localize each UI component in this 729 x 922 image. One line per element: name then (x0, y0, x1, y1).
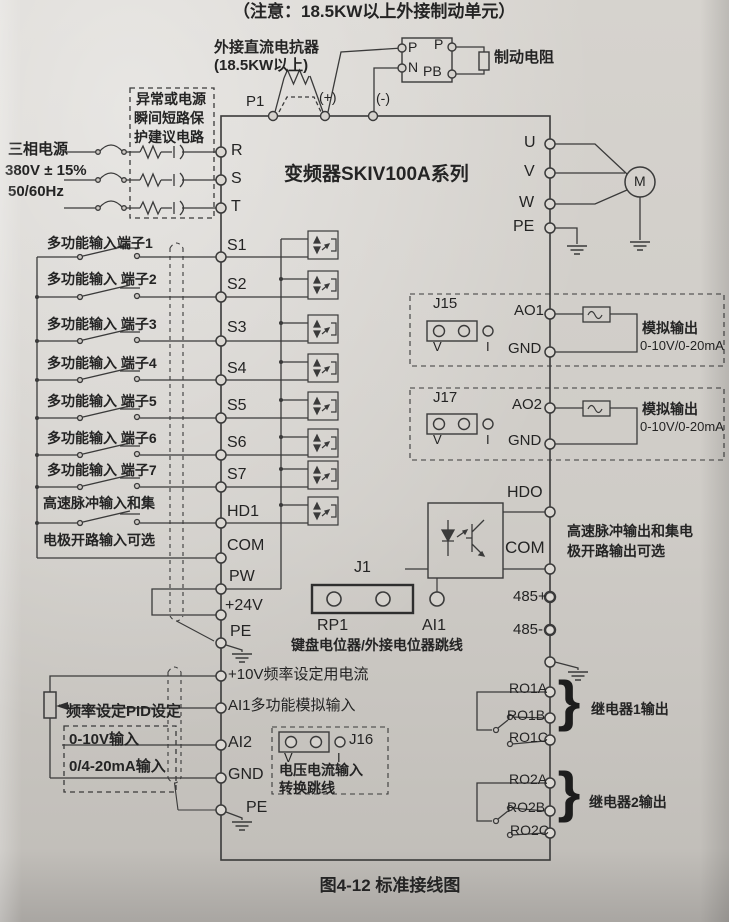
terminal-ao2: AO2 (512, 397, 542, 413)
pulse-output-desc2: 极开路输出可选 (567, 544, 665, 559)
terminal-ao2-gnd: GND (508, 433, 541, 449)
protection-box (130, 88, 214, 218)
ao1-desc2: 0-10V/0-20mA (640, 339, 724, 353)
brake-resistor-symbol (479, 52, 489, 70)
wiring-diagram-page: （注意：18.5KW以上外接制动单元） 外接直流电抗器 (18.5KW以上) P… (0, 0, 729, 922)
terminal-ro1b: RO1B (507, 708, 545, 723)
j17-label: J17 (433, 390, 457, 406)
shield-cable-digital (170, 243, 214, 641)
terminal-ro2c: RO2C (510, 823, 549, 838)
brake-resistor-label: 制动电阻 (494, 50, 554, 66)
potentiometer-symbol (44, 692, 56, 718)
brake-terminal-n: N (408, 60, 418, 75)
di-label-hd1: 高速脉冲输入和集 (43, 496, 155, 511)
terminal-ao1-gnd: GND (508, 341, 541, 357)
di-label-1: 多功能输入端子1 (47, 236, 153, 251)
di-label-7: 多功能输入 端子7 (47, 463, 157, 478)
terminal-v: V (524, 164, 535, 181)
j17-v: V (433, 433, 442, 447)
j16-label: J16 (349, 732, 373, 748)
di-label-6: 多功能输入 端子6 (47, 431, 157, 446)
terminal-ro2a: RO2A (509, 772, 547, 787)
terminal-com-right: COM (505, 539, 545, 557)
motor-circuit (555, 144, 655, 244)
terminal-plus: (+) (319, 90, 337, 105)
protection-line2: 瞬间短路保 (134, 111, 204, 126)
terminal-s5: S5 (227, 398, 247, 415)
j1-jumper (312, 578, 444, 613)
wiring-diagram-canvas (0, 0, 729, 922)
terminal-com: COM (227, 538, 264, 555)
dc-reactor-spec: (18.5KW以上) (214, 58, 308, 74)
terminal-u: U (524, 135, 536, 152)
terminal-s6: S6 (227, 435, 247, 452)
terminal-r: R (231, 143, 243, 160)
figure-caption: 图4-12 标准接线图 (240, 877, 540, 895)
terminal-s3: S3 (227, 320, 247, 337)
terminal-pe-bottom: PE (246, 800, 267, 817)
j16-note1: 电压电流输入 (279, 763, 363, 778)
terminal-hd1: HD1 (227, 504, 259, 521)
terminal-pe-out: PE (513, 219, 534, 236)
j15-i: I (486, 340, 490, 354)
j15-label: J15 (433, 296, 457, 312)
di-label-5: 多功能输入 端子5 (47, 394, 157, 409)
terminal-ai2: AI2 (228, 735, 252, 752)
terminal-s7: S7 (227, 467, 247, 484)
brake-terminal-pb: PB (423, 64, 442, 79)
ao1-desc1: 模拟输出 (642, 321, 698, 336)
inverter-title: 变频器SKIV100A系列 (284, 165, 469, 185)
relay2-brace: } (557, 763, 580, 822)
terminal-ro1a: RO1A (509, 681, 547, 696)
ao2-desc1: 模拟输出 (642, 402, 698, 417)
power-line1: 三相电源 (8, 142, 68, 158)
brake-terminal-p-left: P (408, 40, 417, 55)
j1-label: J1 (354, 560, 371, 577)
power-input-circuit (64, 88, 216, 218)
j15-v: V (433, 340, 442, 354)
di-label-com: 电极开路输入可选 (43, 533, 155, 548)
relay2-desc: 继电器2输出 (589, 795, 667, 810)
terminal-ai1: AI1多功能模拟输入 (228, 698, 356, 714)
terminal-s: S (231, 171, 242, 188)
terminal-hdo: HDO (507, 485, 543, 502)
shield-cable-analog (168, 667, 216, 810)
terminal-t: T (231, 199, 241, 216)
meter-symbol (583, 307, 610, 322)
terminal-s4: S4 (227, 361, 247, 378)
relay1-brace: } (557, 672, 580, 731)
power-line3: 50/60Hz (8, 184, 64, 200)
terminal-gnd: GND (228, 767, 264, 784)
brake-terminal-p-right: P (434, 37, 443, 52)
terminal-s2: S2 (227, 277, 247, 294)
motor-label: M (634, 174, 646, 189)
inverter-box (221, 116, 550, 860)
relay1-desc: 继电器1输出 (591, 702, 669, 717)
keypad-pot-note: 键盘电位器/外接电位器跳线 (291, 638, 463, 653)
range-0-10v: 0-10V输入 (69, 732, 139, 748)
terminal-ao1: AO1 (514, 303, 544, 319)
terminal-minus: (-) (376, 91, 390, 106)
terminal-p1: P1 (246, 94, 264, 110)
j16-jumper (279, 732, 345, 752)
meter-symbol (583, 401, 610, 416)
terminal-w: W (519, 195, 534, 212)
protection-line1: 异常或电源 (136, 92, 206, 107)
di-label-2: 多功能输入 端子2 (47, 272, 157, 287)
ao2-desc2: 0-10V/0-20mA (640, 420, 724, 434)
dc-reactor-label: 外接直流电抗器 (214, 40, 319, 56)
terminal-pw: PW (229, 569, 255, 586)
power-line2: 380V ± 15% (5, 163, 87, 179)
di-label-3: 多功能输入 端子3 (47, 317, 157, 332)
pulse-output-desc1: 高速脉冲输出和集电 (567, 524, 693, 539)
di-label-4: 多功能输入 端子4 (47, 356, 157, 371)
terminal-485-minus: 485- (513, 622, 543, 638)
terminal-pe-mid: PE (230, 624, 251, 641)
terminal-485-plus: 485+ (513, 589, 547, 605)
terminal-ro2b: RO2B (507, 800, 545, 815)
range-0-4-20ma: 0/4-20mA输入 (69, 759, 166, 775)
terminal-24v: +24V (225, 598, 263, 615)
top-note: （注意：18.5KW以上外接制动单元） (233, 3, 515, 21)
pid-label: 频率设定PID设定 (66, 704, 181, 720)
terminal-ro1c: RO1C (509, 730, 548, 745)
terminal-10v: +10V频率设定用电流 (228, 667, 368, 683)
terminal-s1: S1 (227, 238, 247, 255)
j16-note2: 转换跳线 (279, 781, 335, 796)
j17-i: I (486, 433, 490, 447)
rp1-label: RP1 (317, 618, 348, 635)
protection-line3: 护建议电路 (134, 130, 204, 145)
ai1-jumper-label: AI1 (422, 618, 446, 635)
